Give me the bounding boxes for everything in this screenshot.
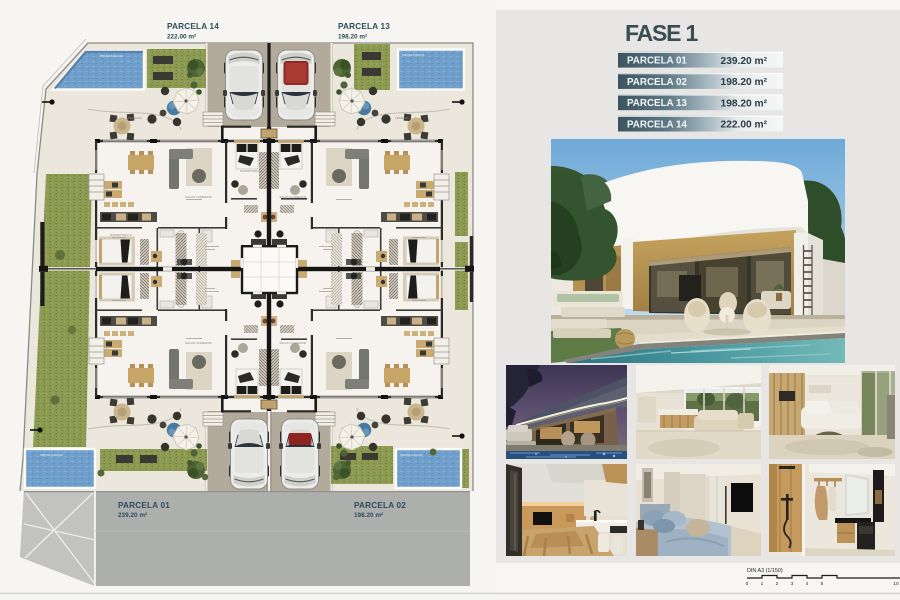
svg-text:TERRAZA: TERRAZA <box>128 116 142 120</box>
svg-text:222.00 m²: 222.00 m² <box>721 120 768 131</box>
svg-text:PARCELA 02: PARCELA 02 <box>627 77 687 88</box>
svg-text:TERRAZA: TERRAZA <box>395 116 409 120</box>
svg-text:239.20 m²: 239.20 m² <box>118 512 147 519</box>
svg-text:10: 10 <box>893 581 899 587</box>
svg-text:PARCELA 13: PARCELA 13 <box>338 22 390 31</box>
svg-text:0: 0 <box>746 581 749 587</box>
svg-text:PARCELA 13: PARCELA 13 <box>627 98 687 109</box>
svg-text:SALON COMEDOR: SALON COMEDOR <box>279 195 307 199</box>
svg-text:198.20 m²: 198.20 m² <box>721 77 768 88</box>
svg-text:222.00 m²: 222.00 m² <box>167 34 196 41</box>
svg-text:198.20 m²: 198.20 m² <box>338 34 367 41</box>
svg-text:PARCELA 02: PARCELA 02 <box>354 501 406 510</box>
svg-text:PARCELA 01: PARCELA 01 <box>118 501 170 510</box>
svg-text:5: 5 <box>821 581 824 587</box>
svg-text:198.20 m²: 198.20 m² <box>354 512 383 519</box>
svg-text:PISCINA 6.00x3.00: PISCINA 6.00x3.00 <box>100 54 123 58</box>
svg-text:3: 3 <box>791 581 794 587</box>
svg-text:2: 2 <box>776 581 779 587</box>
svg-text:PISCINA 6.00x3.00: PISCINA 6.00x3.00 <box>402 53 425 57</box>
svg-text:SALON COMEDOR: SALON COMEDOR <box>279 341 307 345</box>
svg-text:FASE 1: FASE 1 <box>625 20 698 46</box>
svg-text:DIN A3 (1/150): DIN A3 (1/150) <box>747 568 783 574</box>
svg-text:PISCINA 6.00x3.00: PISCINA 6.00x3.00 <box>400 453 423 457</box>
svg-text:PISCINA 6.00x3.00: PISCINA 6.00x3.00 <box>40 453 63 457</box>
svg-text:239.20 m²: 239.20 m² <box>721 56 768 67</box>
svg-text:PARCELA 14: PARCELA 14 <box>627 120 687 131</box>
svg-text:DORMITORIO 2: DORMITORIO 2 <box>110 233 132 237</box>
svg-text:SALON COMEDOR: SALON COMEDOR <box>185 195 213 199</box>
svg-text:1: 1 <box>761 581 764 587</box>
svg-text:PARCELA 14: PARCELA 14 <box>167 22 219 31</box>
svg-text:SALON COMEDOR: SALON COMEDOR <box>185 341 213 345</box>
svg-text:PARCELA 01: PARCELA 01 <box>627 56 687 67</box>
svg-text:4: 4 <box>806 581 809 587</box>
svg-text:198.20 m²: 198.20 m² <box>721 98 768 109</box>
svg-text:DORMITORIO 1: DORMITORIO 1 <box>240 169 262 173</box>
